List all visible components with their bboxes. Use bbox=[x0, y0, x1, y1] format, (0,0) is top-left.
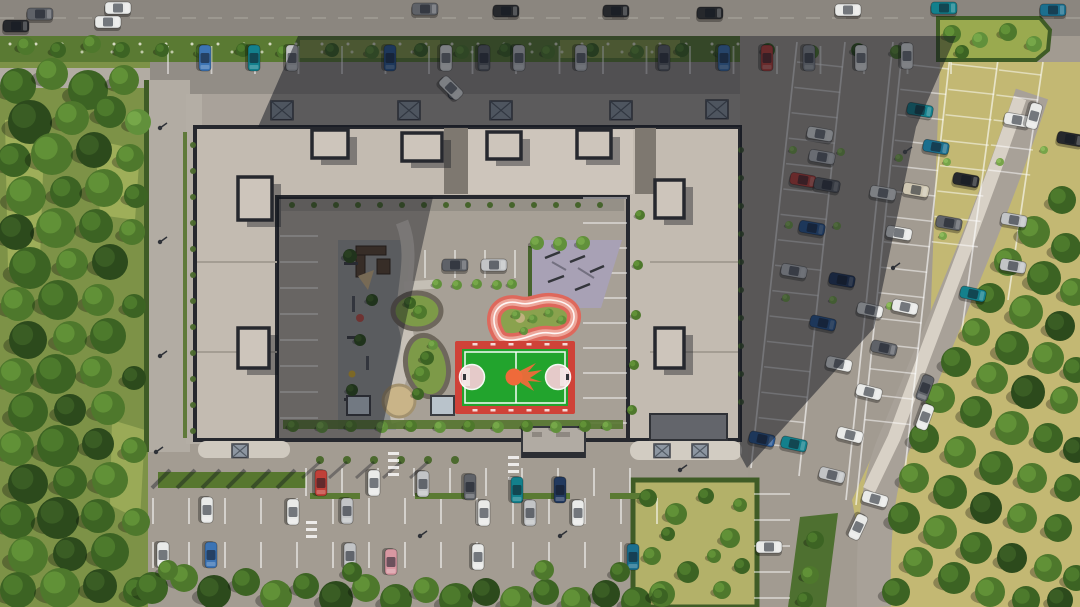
tree-highlight bbox=[1010, 506, 1027, 523]
tree-highlight bbox=[1, 217, 21, 237]
car-glass bbox=[35, 10, 45, 19]
tree-highlight bbox=[947, 439, 965, 457]
tree-highlight bbox=[1054, 236, 1071, 253]
tree-highlight bbox=[679, 563, 691, 575]
car bbox=[569, 499, 584, 526]
crosswalk bbox=[306, 535, 317, 538]
tree-highlight bbox=[708, 550, 716, 558]
tree-highlight bbox=[13, 251, 36, 274]
tree-highlight bbox=[531, 237, 539, 245]
right-wing-dark-roof bbox=[650, 414, 727, 440]
tree-highlight bbox=[295, 575, 309, 589]
tree-highlight bbox=[442, 586, 461, 605]
tree-highlight bbox=[1, 433, 21, 453]
tree-highlight bbox=[474, 580, 489, 595]
car-glass bbox=[629, 552, 638, 562]
crosswalk bbox=[306, 521, 317, 524]
tree bbox=[0, 68, 36, 104]
car bbox=[312, 469, 327, 496]
tree-highlight bbox=[545, 309, 550, 314]
car bbox=[284, 498, 299, 525]
tree-highlight bbox=[12, 324, 33, 345]
car-hood-highlight bbox=[855, 6, 859, 15]
tree-highlight bbox=[414, 306, 422, 314]
car-glass bbox=[764, 543, 774, 552]
tree-highlight bbox=[735, 559, 744, 568]
terrace-hedge bbox=[443, 202, 449, 208]
balcony-planters-west bbox=[190, 402, 196, 408]
tree-highlight bbox=[3, 71, 23, 91]
pergola bbox=[431, 396, 454, 415]
tree-highlight bbox=[1046, 516, 1061, 531]
tree-highlight bbox=[57, 397, 75, 415]
car-hood-highlight bbox=[556, 497, 565, 501]
tree-highlight bbox=[83, 359, 101, 377]
hoop-post bbox=[463, 374, 466, 380]
car-hood-highlight bbox=[343, 518, 352, 522]
tree-highlight bbox=[12, 104, 36, 128]
tree-highlight bbox=[493, 281, 499, 287]
tree-highlight bbox=[978, 580, 995, 597]
hedge-line bbox=[144, 80, 149, 452]
tree-highlight bbox=[902, 466, 919, 483]
tree-highlight bbox=[11, 467, 33, 489]
tree-highlight bbox=[577, 237, 585, 245]
tree-highlight bbox=[473, 280, 479, 286]
tree-highlight bbox=[1035, 345, 1053, 363]
tree-highlight bbox=[634, 261, 640, 267]
car bbox=[196, 44, 211, 71]
tree-highlight bbox=[322, 584, 341, 603]
tree-highlight bbox=[979, 365, 997, 383]
tree-highlight bbox=[699, 489, 708, 498]
car-glass bbox=[1007, 261, 1018, 272]
tree-highlight bbox=[429, 341, 435, 347]
car-glass bbox=[943, 218, 954, 229]
terrace-hedge bbox=[531, 202, 537, 208]
car-glass bbox=[113, 4, 123, 13]
car-glass bbox=[466, 482, 475, 492]
car-glass bbox=[893, 228, 904, 239]
terrace-hedge bbox=[575, 202, 581, 208]
tree-highlight bbox=[3, 575, 23, 595]
tree-highlight bbox=[0, 146, 19, 165]
tree-highlight bbox=[944, 350, 961, 367]
flowers bbox=[35, 43, 38, 46]
car-hood-highlight bbox=[250, 65, 259, 69]
terrace-hedge bbox=[465, 202, 471, 208]
tree-highlight bbox=[503, 589, 521, 607]
tree-highlight bbox=[11, 395, 33, 417]
shed-vent bbox=[532, 432, 542, 437]
tree-highlight bbox=[84, 502, 103, 521]
tree-highlight bbox=[1036, 426, 1053, 443]
crosswalk bbox=[388, 452, 399, 455]
tree-highlight bbox=[421, 352, 429, 360]
car-hood-highlight bbox=[289, 519, 298, 523]
tree-highlight bbox=[998, 414, 1017, 433]
tree-highlight bbox=[19, 39, 29, 49]
terrace-hedge bbox=[487, 202, 493, 208]
car-hood-highlight bbox=[629, 564, 638, 568]
tree-highlight bbox=[1012, 298, 1031, 317]
building-shadow-north bbox=[258, 36, 956, 127]
car-hood-highlight bbox=[526, 520, 535, 524]
car-glass bbox=[843, 6, 853, 15]
tree-highlight bbox=[71, 73, 93, 95]
car bbox=[602, 5, 629, 20]
terrace-hedge bbox=[597, 202, 603, 208]
tree-highlight bbox=[529, 315, 534, 320]
crosswalk bbox=[508, 470, 519, 473]
car bbox=[94, 16, 121, 31]
tree-highlight bbox=[628, 406, 634, 412]
roof-box bbox=[312, 130, 348, 158]
flowers bbox=[217, 43, 220, 46]
tree-highlight bbox=[973, 495, 991, 513]
flowers bbox=[81, 51, 84, 54]
tree-highlight bbox=[43, 571, 65, 593]
tree-highlight bbox=[521, 328, 525, 332]
car bbox=[834, 4, 861, 19]
balcony-planters-west bbox=[190, 324, 196, 330]
tree-highlight bbox=[85, 287, 103, 305]
car-glass bbox=[1011, 115, 1022, 126]
balcony-planters-west bbox=[190, 142, 196, 148]
car-hood-highlight bbox=[574, 520, 583, 524]
tree-highlight bbox=[973, 33, 982, 42]
car-glass bbox=[207, 550, 216, 560]
car-hood-highlight bbox=[125, 4, 129, 13]
car-glass bbox=[419, 479, 428, 489]
tree-highlight bbox=[554, 238, 562, 246]
tree-highlight bbox=[1065, 359, 1079, 373]
car-hood-highlight bbox=[474, 564, 483, 568]
tree-highlight bbox=[1049, 589, 1063, 603]
tree-highlight bbox=[115, 43, 124, 52]
car-hood-highlight bbox=[115, 18, 119, 27]
tree-highlight bbox=[884, 580, 899, 595]
tree-highlight bbox=[35, 137, 58, 160]
crosswalk bbox=[508, 463, 519, 466]
car-hood-highlight bbox=[370, 490, 379, 494]
car bbox=[441, 259, 468, 274]
car-hood-highlight bbox=[951, 4, 955, 13]
tree-highlight bbox=[118, 146, 133, 161]
car-glass bbox=[159, 550, 168, 560]
crosswalk bbox=[388, 459, 399, 462]
tree-highlight bbox=[558, 316, 563, 321]
tree-highlight bbox=[564, 590, 581, 607]
tree-highlight bbox=[95, 247, 115, 267]
tree-highlight bbox=[653, 589, 662, 598]
car-glass bbox=[1048, 6, 1058, 15]
tree-highlight bbox=[508, 280, 513, 286]
tree-highlight bbox=[86, 572, 105, 591]
tree-highlight bbox=[1030, 264, 1049, 283]
car-glass bbox=[526, 508, 535, 518]
tree-highlight bbox=[1062, 280, 1077, 295]
car bbox=[382, 548, 397, 575]
roof-notch bbox=[635, 128, 656, 194]
tree-highlight bbox=[79, 135, 99, 155]
tree-highlight bbox=[798, 593, 807, 602]
utility-shed-shade bbox=[522, 452, 585, 458]
car-hood-highlight bbox=[47, 10, 51, 19]
tree-highlight bbox=[945, 27, 955, 37]
roof-box bbox=[402, 133, 442, 161]
car bbox=[461, 473, 476, 500]
tree-highlight bbox=[237, 44, 245, 52]
tree-highlight bbox=[139, 575, 157, 593]
tree-highlight bbox=[956, 46, 964, 54]
tree-highlight bbox=[39, 357, 61, 379]
tree-highlight bbox=[1036, 556, 1051, 571]
hoop-post bbox=[566, 374, 569, 380]
tree-highlight bbox=[1065, 567, 1079, 581]
lamp-post bbox=[158, 126, 162, 130]
tree-highlight bbox=[963, 535, 981, 553]
car bbox=[930, 2, 957, 17]
flame-logo bbox=[506, 369, 523, 386]
flowers bbox=[261, 51, 264, 54]
tree-highlight bbox=[603, 422, 609, 428]
car-hood-highlight bbox=[387, 569, 396, 573]
car-glass bbox=[910, 185, 921, 196]
car-hood-highlight bbox=[317, 490, 326, 494]
tree-highlight bbox=[891, 505, 909, 523]
car bbox=[104, 2, 131, 17]
tree-highlight bbox=[1056, 476, 1071, 491]
flowers bbox=[139, 43, 142, 46]
lamp-post bbox=[158, 240, 162, 244]
car-hood-highlight bbox=[776, 543, 780, 552]
car-glass bbox=[346, 551, 355, 561]
terrace-hedge bbox=[553, 202, 559, 208]
tree-highlight bbox=[1, 361, 21, 381]
saplings bbox=[451, 456, 459, 464]
tree-highlight bbox=[667, 505, 679, 517]
tree-highlight bbox=[1001, 25, 1011, 35]
tree-highlight bbox=[464, 421, 471, 428]
tree-highlight bbox=[887, 303, 891, 307]
car bbox=[26, 8, 53, 23]
lamp-post bbox=[891, 266, 895, 270]
tree-highlight bbox=[1014, 588, 1029, 603]
tree-highlight bbox=[612, 564, 623, 575]
tree-highlight bbox=[632, 311, 638, 317]
car bbox=[492, 5, 519, 20]
car-glass bbox=[343, 506, 352, 516]
car-glass bbox=[420, 5, 430, 14]
tree-highlight bbox=[41, 429, 64, 452]
lamp-post bbox=[678, 468, 682, 472]
flowers bbox=[231, 51, 234, 54]
tree-highlight bbox=[200, 578, 219, 597]
tree-highlight bbox=[941, 565, 959, 583]
balcony-planters-west bbox=[190, 272, 196, 278]
tree-highlight bbox=[124, 510, 139, 525]
car-hood-highlight bbox=[432, 5, 436, 14]
car bbox=[551, 476, 566, 503]
tree-highlight bbox=[636, 211, 642, 217]
car bbox=[696, 7, 723, 22]
car bbox=[414, 470, 429, 497]
tree-highlight bbox=[41, 283, 63, 305]
tree-highlight bbox=[88, 172, 109, 193]
car bbox=[475, 499, 490, 526]
car-hood-highlight bbox=[23, 22, 27, 31]
tree-highlight bbox=[493, 422, 500, 429]
car-hood-highlight bbox=[1060, 6, 1064, 15]
tree-highlight bbox=[415, 579, 429, 593]
entrance-plaza bbox=[630, 441, 742, 460]
tree-highlight bbox=[413, 389, 420, 396]
car-glass bbox=[1008, 215, 1019, 226]
tree-highlight bbox=[383, 587, 401, 605]
flowers bbox=[171, 51, 174, 54]
tree-highlight bbox=[234, 570, 249, 585]
tree-highlight bbox=[906, 550, 923, 567]
tree-highlight bbox=[39, 211, 61, 233]
balcony-planters-west bbox=[190, 220, 196, 226]
flowers bbox=[269, 43, 272, 46]
lamp-post bbox=[903, 150, 907, 154]
car-glass bbox=[930, 142, 941, 153]
tree-highlight bbox=[51, 43, 60, 52]
tree-highlight bbox=[1048, 314, 1065, 331]
tree-highlight bbox=[156, 44, 164, 52]
car bbox=[198, 496, 213, 523]
tree-highlight bbox=[734, 499, 742, 507]
tree-highlight bbox=[415, 367, 424, 376]
car-hood-highlight bbox=[462, 261, 466, 270]
flowers bbox=[191, 43, 194, 46]
tree-highlight bbox=[82, 212, 101, 231]
tree-highlight bbox=[535, 581, 549, 595]
site-plan-aerial-view bbox=[0, 0, 1080, 607]
tree-highlight bbox=[433, 280, 439, 286]
tree-highlight bbox=[522, 421, 529, 428]
tree-highlight bbox=[435, 422, 442, 429]
shed-vent bbox=[556, 432, 570, 437]
roof-box bbox=[238, 177, 272, 220]
tree-highlight bbox=[722, 530, 733, 541]
tree-highlight bbox=[112, 68, 129, 85]
tree-highlight bbox=[641, 491, 651, 501]
tree-highlight bbox=[944, 159, 948, 163]
tree-highlight bbox=[803, 568, 813, 578]
tree bbox=[0, 572, 36, 607]
tree-highlight bbox=[95, 465, 115, 485]
car bbox=[521, 499, 536, 526]
flowers bbox=[113, 43, 116, 46]
tree-highlight bbox=[936, 478, 955, 497]
tree-highlight bbox=[160, 562, 171, 573]
car bbox=[755, 541, 782, 556]
balcony-planters-west bbox=[190, 350, 196, 356]
car bbox=[202, 541, 217, 568]
tree-highlight bbox=[624, 590, 641, 607]
car-glass bbox=[556, 485, 565, 495]
roof-box bbox=[238, 328, 269, 368]
car-hood-highlight bbox=[419, 491, 428, 495]
tree-highlight bbox=[551, 422, 558, 429]
tree-highlight bbox=[126, 186, 139, 199]
tree-highlight bbox=[997, 159, 1001, 163]
tree-highlight bbox=[808, 533, 818, 543]
car-glass bbox=[11, 22, 21, 31]
tree-highlight bbox=[11, 539, 33, 561]
car-hood-highlight bbox=[203, 517, 212, 521]
car-hood-highlight bbox=[513, 7, 517, 16]
tree-highlight bbox=[4, 290, 23, 309]
tree-highlight bbox=[1020, 466, 1037, 483]
car bbox=[2, 20, 29, 35]
tree-highlight bbox=[58, 104, 77, 123]
car-glass bbox=[450, 261, 460, 270]
flowers bbox=[141, 51, 144, 54]
car-glass bbox=[387, 557, 396, 567]
tree-highlight bbox=[940, 233, 944, 237]
balcony-planters-west bbox=[190, 168, 196, 174]
tree-highlight bbox=[94, 394, 113, 413]
hedge-line bbox=[183, 132, 187, 438]
car bbox=[480, 259, 507, 274]
tree-highlight bbox=[662, 528, 670, 536]
tree-highlight bbox=[964, 320, 979, 335]
car-glass bbox=[317, 478, 326, 488]
roof-box bbox=[655, 180, 684, 218]
car-glass bbox=[939, 4, 949, 13]
roof-box bbox=[655, 328, 684, 368]
crosswalk bbox=[388, 466, 399, 469]
tree-highlight bbox=[56, 468, 75, 487]
car-hood-highlight bbox=[466, 494, 475, 498]
tree-highlight bbox=[263, 583, 281, 601]
car bbox=[469, 543, 484, 570]
roof-box bbox=[487, 132, 521, 159]
tree-highlight bbox=[124, 296, 137, 309]
roof-box bbox=[577, 130, 611, 158]
crosswalk bbox=[508, 456, 519, 459]
car-hood-highlight bbox=[513, 497, 522, 501]
tree-highlight bbox=[982, 454, 1001, 473]
tree-highlight bbox=[715, 583, 725, 593]
tree-highlight bbox=[512, 311, 517, 316]
car-glass bbox=[250, 53, 259, 63]
car-glass bbox=[1064, 134, 1075, 145]
car-glass bbox=[370, 478, 379, 488]
tree-highlight bbox=[56, 540, 75, 559]
tree-highlight bbox=[0, 504, 21, 525]
tree-highlight bbox=[580, 421, 587, 428]
tree-highlight bbox=[41, 501, 64, 524]
car-glass bbox=[489, 261, 499, 270]
car-hood-highlight bbox=[480, 520, 489, 524]
car-glass bbox=[480, 508, 489, 518]
car-glass bbox=[611, 7, 621, 16]
flowers bbox=[9, 43, 12, 46]
tree-highlight bbox=[406, 421, 413, 428]
car-hood-highlight bbox=[623, 7, 627, 16]
car-hood-highlight bbox=[501, 261, 505, 270]
lamp-post bbox=[418, 534, 422, 538]
terrace-hedge bbox=[509, 202, 515, 208]
tree-highlight bbox=[1041, 147, 1045, 151]
car-glass bbox=[501, 7, 511, 16]
car bbox=[508, 476, 523, 503]
